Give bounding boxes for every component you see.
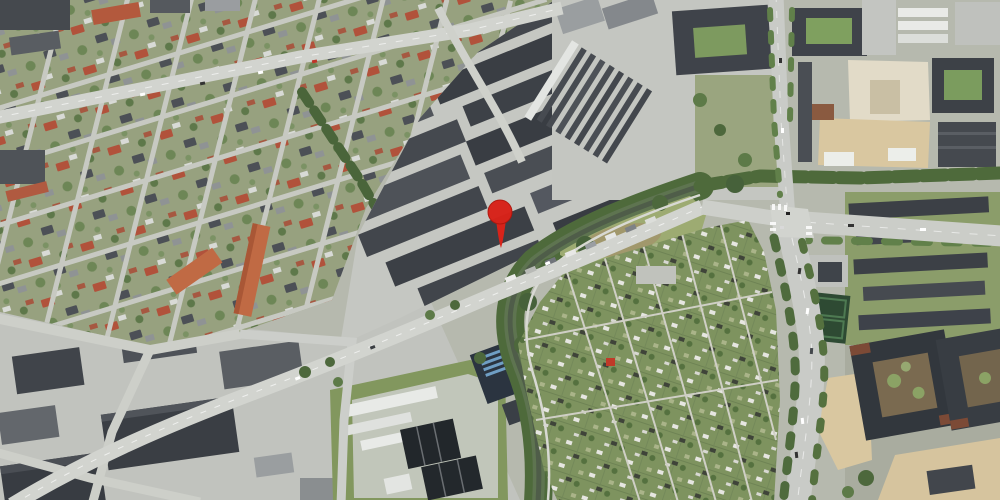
- east-road: [790, 221, 1000, 236]
- top-center-commercial: [524, 0, 782, 200]
- map-viewport[interactable]: [0, 0, 1000, 500]
- satellite-image: [0, 0, 1000, 500]
- parking-canopies: [898, 8, 948, 43]
- bottom-right-blocks: [818, 325, 1000, 500]
